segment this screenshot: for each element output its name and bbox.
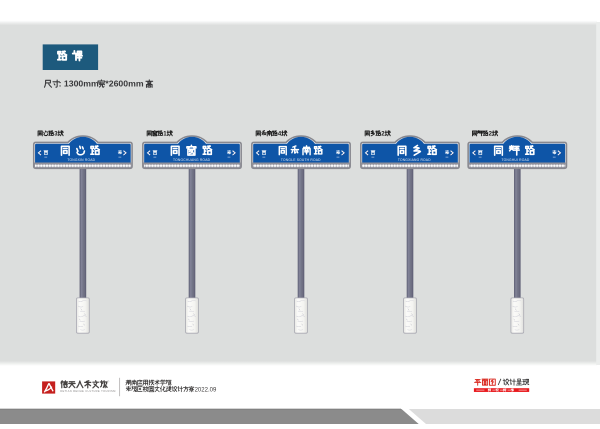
- svg-text:2022.09: 2022.09: [195, 387, 217, 393]
- svg-text:TONGXIN ROAD: TONGXIN ROAD: [67, 158, 95, 162]
- svg-text:DETIAN RENHE CULTURE TOURISM: DETIAN RENHE CULTURE TOURISM: [60, 389, 116, 393]
- svg-text:TONGLE SOUTH ROAD: TONGLE SOUTH ROAD: [281, 158, 321, 162]
- svg-text:: 1300mm: : 1300mm: [59, 78, 99, 88]
- svg-text:TONGCHUANG ROAD: TONGCHUANG ROAD: [173, 158, 211, 162]
- svg-text:TONGHUI ROAD: TONGHUI ROAD: [502, 158, 530, 162]
- svg-text:*2600mm: *2600mm: [105, 78, 143, 88]
- svg-text:TONGXIANG ROAD: TONGXIANG ROAD: [398, 158, 431, 162]
